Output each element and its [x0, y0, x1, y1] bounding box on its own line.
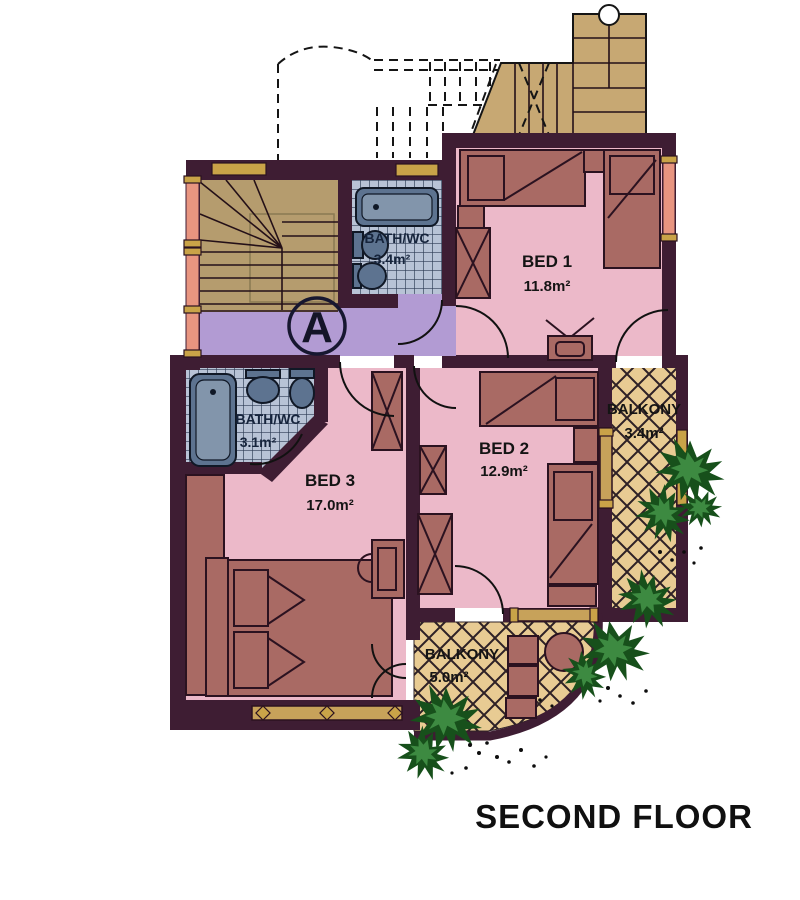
window	[510, 609, 598, 621]
floor-plan-drawing: A BED 1 11.8m² BED 2 12.9m² BED 3 17.0m²…	[0, 0, 800, 900]
bed-icon	[548, 464, 598, 606]
window	[600, 428, 612, 508]
section-marker-label: A	[301, 303, 333, 352]
window	[663, 162, 675, 234]
bed-icon	[460, 150, 585, 206]
window	[186, 252, 199, 306]
balcony-bottom-area: 5.0m²	[429, 669, 468, 686]
floor-plan-page: A BED 1 11.8m² BED 2 12.9m² BED 3 17.0m²…	[0, 0, 800, 900]
bed3-label: BED 3	[305, 471, 355, 490]
lounge-chair-icon	[506, 636, 538, 718]
wardrobe-icon	[372, 372, 402, 450]
bed-icon	[604, 150, 660, 268]
external-stairs-icon	[473, 5, 646, 135]
window	[186, 182, 199, 240]
balcony-right-label: BALKONY	[607, 401, 681, 418]
bed2-area: 12.9m²	[480, 463, 528, 480]
wardrobe-icon	[420, 446, 446, 494]
bed3-area: 17.0m²	[306, 497, 354, 514]
bath-left-label: BATH/WC	[235, 411, 300, 427]
bath-top-label: BATH/WC	[364, 230, 429, 246]
nightstand-icon	[574, 428, 598, 462]
bed1-area: 11.8m²	[524, 278, 571, 295]
window	[186, 312, 199, 352]
bed-icon	[480, 372, 598, 426]
window	[212, 163, 266, 175]
bath-left-area: 3.1m²	[240, 434, 277, 450]
balcony-bottom-label: BALKONY	[425, 646, 499, 663]
bed2-label: BED 2	[479, 439, 529, 458]
bath-top-area: 3.4m²	[374, 251, 411, 267]
wardrobe-icon	[418, 514, 452, 594]
balcony-right-area: 3.4m²	[624, 425, 663, 442]
toilet-icon	[290, 369, 314, 408]
page-title: SECOND FLOOR	[475, 798, 753, 835]
window	[396, 164, 438, 176]
sink-icon	[246, 370, 280, 403]
bed1-label: BED 1	[522, 252, 572, 271]
nightstand-icon	[458, 206, 484, 228]
nightstand-icon	[584, 150, 604, 172]
wardrobe-icon	[456, 228, 490, 298]
